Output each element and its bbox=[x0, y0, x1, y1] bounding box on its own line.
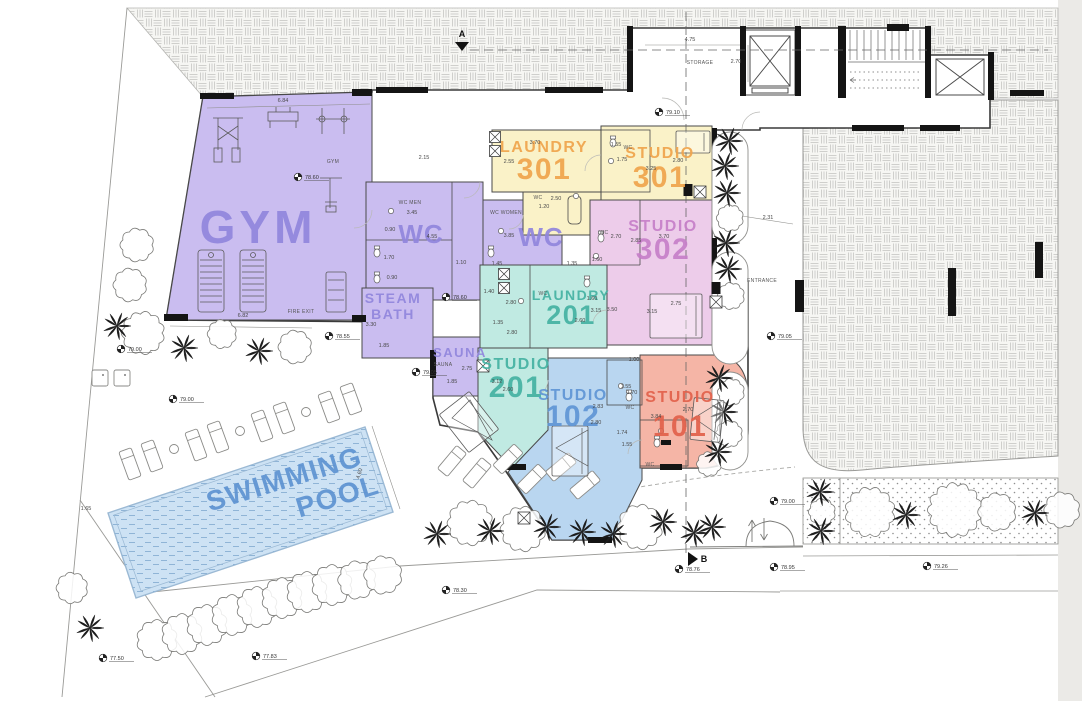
dimension-text: 3.15 bbox=[647, 309, 658, 315]
level-value: 77.50 bbox=[110, 656, 124, 662]
dimension-text: 3.70 bbox=[530, 140, 541, 146]
annotation-label: WC bbox=[539, 291, 548, 297]
dimension-text: 2.50 bbox=[551, 196, 562, 202]
side-table-icon bbox=[170, 445, 179, 454]
dimension-text: 1.45 bbox=[492, 261, 503, 267]
dimension-text: 1.10 bbox=[456, 260, 467, 266]
bush-icon bbox=[120, 228, 153, 262]
toilet-tank bbox=[374, 246, 379, 249]
dimension-text: 0.90 bbox=[387, 275, 398, 281]
toilet-bow bbox=[374, 275, 380, 283]
level-value: 79.05 bbox=[778, 334, 792, 340]
annotation-label: WC bbox=[626, 405, 635, 411]
dimension-text: 1.75 bbox=[617, 157, 628, 163]
toilet-tank bbox=[584, 276, 589, 279]
dimension-text: 2.80 bbox=[507, 330, 518, 336]
room-label: STUDIO301 bbox=[625, 145, 694, 194]
toilet-bow bbox=[584, 279, 590, 287]
dimension-text: 2.75 bbox=[671, 301, 682, 307]
dimension-text: 1.85 bbox=[447, 379, 458, 385]
washing-machine-icon bbox=[490, 132, 501, 143]
room-label: WC bbox=[518, 222, 563, 252]
dimension-text: 3.85 bbox=[504, 233, 515, 239]
dimension-text: 2.60 bbox=[503, 387, 514, 393]
annotation-label: WC bbox=[624, 145, 633, 151]
bed-icon bbox=[552, 426, 588, 476]
dimension-text: 4.55 bbox=[427, 234, 438, 240]
dimension-text: 1.00 bbox=[629, 357, 640, 363]
dimension-text: 2.80 bbox=[591, 420, 602, 426]
dimension-text: 3.25 bbox=[646, 166, 657, 172]
kitchen-unit-icon bbox=[712, 282, 721, 294]
dimension-text: 2.75 bbox=[462, 366, 473, 372]
sink-icon bbox=[388, 208, 393, 213]
floor-plan-drawing: GYMWCWCSTEAMBATHSAUNALAUNDRY301STUDIO301… bbox=[0, 0, 1082, 701]
dimension-text: 2.80 bbox=[673, 158, 684, 164]
room-label: STEAMBATH bbox=[365, 290, 422, 322]
bush-icon bbox=[207, 319, 236, 348]
toilet-tank bbox=[610, 136, 615, 139]
dimension-text: 6.84 bbox=[278, 98, 289, 104]
annotation-label: WC bbox=[534, 195, 543, 201]
room-label: GYM bbox=[200, 201, 317, 253]
level-value: 78.30 bbox=[453, 588, 467, 594]
dimension-text: 2.83 bbox=[593, 404, 604, 410]
dimension-text: 2.15 bbox=[419, 155, 430, 161]
dimension-text: 3.84 bbox=[651, 414, 662, 420]
page-right-margin bbox=[1058, 0, 1082, 701]
room-label-text: WC bbox=[518, 222, 563, 252]
planter-box-icon bbox=[114, 370, 130, 386]
level-value: 78.60 bbox=[305, 175, 319, 181]
dimension-text: 6.82 bbox=[238, 313, 249, 319]
dimension-text: 1.40 bbox=[484, 289, 495, 295]
annotation-label: SAUNA bbox=[434, 362, 453, 368]
dimension-text: 2.85 bbox=[631, 238, 642, 244]
dimension-text: 1.60 bbox=[592, 257, 603, 263]
room-label-text: STUDIO bbox=[625, 145, 694, 162]
washing-machine-icon bbox=[499, 269, 510, 280]
dimension-text: 1.55 bbox=[611, 142, 622, 148]
section-letter: A bbox=[459, 29, 466, 39]
sink-icon bbox=[608, 158, 613, 163]
planter-box bbox=[114, 370, 130, 386]
dimension-text: 2.70 bbox=[683, 407, 694, 413]
hob-icon bbox=[518, 512, 530, 524]
room-label-text: BATH bbox=[371, 306, 415, 322]
dimension-text: 1.74 bbox=[617, 430, 628, 436]
sink-icon bbox=[518, 298, 523, 303]
dimension-text: 1.55 bbox=[622, 442, 633, 448]
toilet-icon bbox=[374, 272, 380, 283]
bush-icon bbox=[1044, 492, 1080, 528]
room-label-text: SAUNA bbox=[433, 345, 487, 360]
section-letter: B bbox=[701, 554, 708, 564]
level-value: 79.00 bbox=[180, 397, 194, 403]
room-label-text: GYM bbox=[200, 201, 317, 253]
planter-dot bbox=[102, 374, 104, 376]
annotation-label: WC MEN bbox=[399, 200, 422, 206]
annotation-label: ENTRANCE bbox=[747, 278, 777, 284]
washing-machine-icon bbox=[499, 283, 510, 294]
room-label-text: 301 bbox=[517, 153, 572, 186]
room-label-text: STEAM bbox=[365, 290, 422, 306]
level-value: 78.60 bbox=[453, 295, 467, 301]
level-value: 79.26 bbox=[934, 564, 948, 570]
side-table-icon bbox=[302, 408, 311, 417]
planter-box bbox=[92, 370, 108, 386]
planter-dot bbox=[124, 374, 126, 376]
dimension-text: 0.90 bbox=[385, 227, 396, 233]
level-value: 77.83 bbox=[263, 654, 277, 660]
level-value: 79.10 bbox=[666, 110, 680, 116]
dimension-text: 2.60 bbox=[575, 318, 586, 324]
annotation-label: STORAGE bbox=[687, 60, 714, 66]
toilet-icon bbox=[488, 246, 494, 257]
toilet-bow bbox=[488, 249, 494, 257]
dimension-text: 2.70 bbox=[611, 234, 622, 240]
annotation-label: FIRE EXIT bbox=[288, 309, 315, 315]
washing-machine-icon bbox=[490, 146, 501, 157]
dimension-text: 3.70 bbox=[659, 234, 670, 240]
level-value: 79.00 bbox=[781, 499, 795, 505]
side-table-icon bbox=[236, 427, 245, 436]
bush-icon bbox=[278, 330, 311, 364]
dimension-text: 2.70 bbox=[731, 59, 742, 65]
hob-icon bbox=[694, 186, 706, 198]
room-label-text: 201 bbox=[489, 371, 544, 404]
annotation-label: GYM bbox=[327, 159, 339, 165]
dimension-text: 1.65 bbox=[81, 506, 92, 512]
dimension-text: 3.30 bbox=[366, 322, 377, 328]
right-paving bbox=[803, 100, 1058, 471]
dimension-text: 3.45 bbox=[407, 210, 418, 216]
dimension-text: 3.50 bbox=[607, 307, 618, 313]
room-label-text: STUDIO bbox=[645, 389, 714, 406]
level-value: 78.76 bbox=[686, 567, 700, 573]
toilet-tank bbox=[488, 246, 493, 249]
dimension-text: 2.80 bbox=[506, 300, 517, 306]
dimension-text: 1.35 bbox=[493, 320, 504, 326]
bush-icon bbox=[113, 268, 146, 302]
toilet-icon bbox=[374, 246, 380, 257]
bush-icon bbox=[716, 205, 743, 232]
room-label: SAUNA bbox=[433, 345, 487, 360]
planter-box-icon bbox=[92, 370, 108, 386]
bush-icon bbox=[56, 572, 87, 603]
toilet-icon bbox=[584, 276, 590, 287]
room-label-text: 201 bbox=[546, 300, 596, 330]
dimension-text: 1.60 bbox=[587, 296, 598, 302]
dimension-text: 3.15 bbox=[591, 308, 602, 314]
sink-icon bbox=[573, 193, 578, 198]
annotation-label: WC WOMEN bbox=[490, 210, 522, 216]
bush-icon bbox=[845, 487, 894, 536]
dimension-text: 2.55 bbox=[504, 159, 515, 165]
level-value: 78.55 bbox=[336, 334, 350, 340]
level-value: 79.00 bbox=[128, 347, 142, 353]
annotation-label: WC bbox=[600, 230, 609, 236]
annotation-label: WC bbox=[646, 462, 655, 468]
dimension-text: 2.31 bbox=[763, 215, 774, 221]
room-label: STUDIO102 bbox=[538, 387, 607, 433]
dimension-text: 4.75 bbox=[685, 37, 696, 43]
dimension-text: 1.70 bbox=[384, 255, 395, 261]
dimension-text: 3.12 bbox=[492, 379, 503, 385]
toilet-bow bbox=[374, 249, 380, 257]
dimension-text: 1.35 bbox=[567, 261, 578, 267]
dimension-text: 1.70 bbox=[627, 390, 638, 396]
dimension-text: 1.85 bbox=[379, 343, 390, 349]
dimension-text: 1.20 bbox=[539, 204, 550, 210]
room-label-text: 301 bbox=[633, 161, 688, 194]
level-value: 78.95 bbox=[781, 565, 795, 571]
floor-plan-page: GYMWCWCSTEAMBATHSAUNALAUNDRY301STUDIO301… bbox=[0, 0, 1082, 701]
toilet-tank bbox=[374, 272, 379, 275]
level-value: 79.05 bbox=[423, 370, 437, 376]
bed-frame bbox=[552, 426, 588, 476]
hob-icon bbox=[710, 296, 722, 308]
